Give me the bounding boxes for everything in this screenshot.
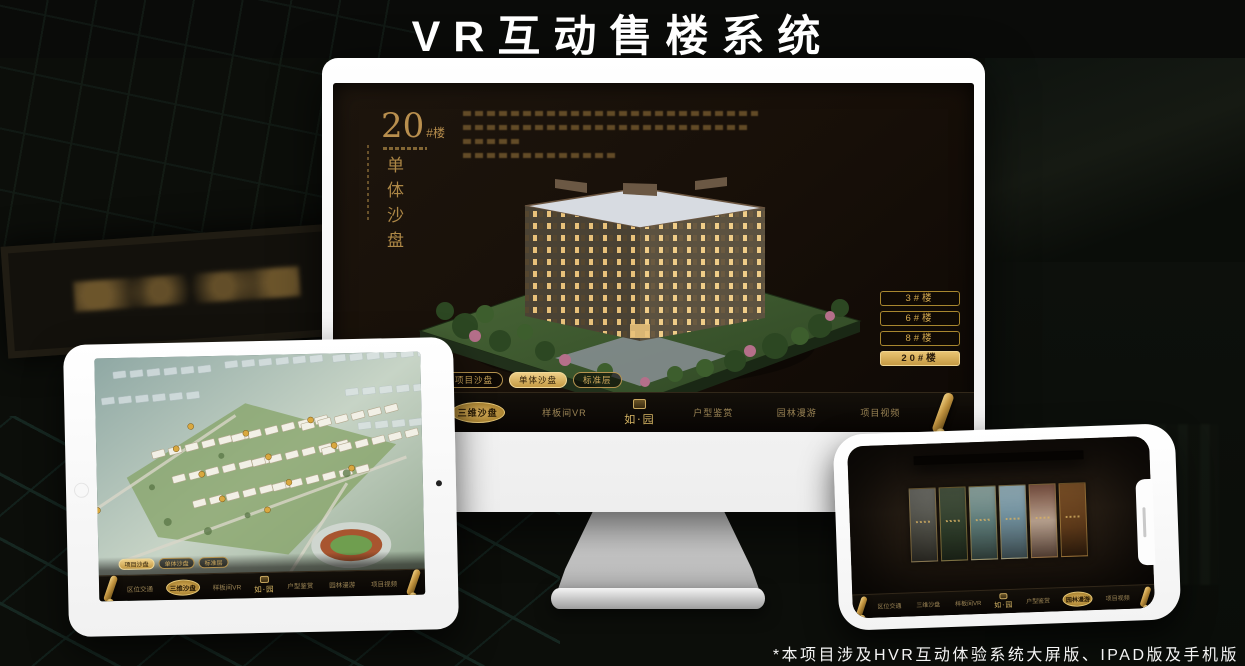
- view-tabs: 项目沙盘 单体沙盘 标准层: [445, 372, 622, 388]
- ipad-nav-project-video[interactable]: 项目视频: [368, 576, 400, 591]
- floor-button-20[interactable]: 20#楼: [880, 351, 960, 366]
- nav-item-project-video[interactable]: 项目视频: [854, 403, 906, 422]
- phone-nav-location[interactable]: 区位交通: [875, 599, 903, 613]
- phone-brand-logo: 如·园: [994, 593, 1014, 611]
- monitor-stand-neck: [557, 510, 760, 592]
- phone-frame: 区位交通 三维沙盘 样板间VR 如·园 户型鉴赏 园林漫游 项目视频: [833, 423, 1182, 631]
- ipad-nav-floorplans[interactable]: 户型鉴赏: [284, 577, 316, 592]
- gate-silhouette: [914, 450, 1083, 465]
- ipad-scroll-right-icon[interactable]: [406, 568, 421, 596]
- floor-button-group: 3#楼 6#楼 8#楼 20#楼: [880, 291, 960, 366]
- ipad-screen: 项目沙盘 单体沙盘 标准层 区位交通 三维沙盘 样板间VR 如·园 户型鉴赏 园…: [94, 352, 425, 602]
- scroll-menu-icon[interactable]: [931, 391, 955, 432]
- ipad-tab-single-sandbox[interactable]: 单体沙盘: [158, 557, 194, 569]
- nav-item-floorplans[interactable]: 户型鉴赏: [687, 403, 739, 422]
- heading-vertical-rule: [367, 145, 369, 223]
- ipad-camera-dot: [436, 480, 442, 486]
- ipad-scroll-left-icon[interactable]: [103, 575, 118, 602]
- ipad-view-tabs: 项目沙盘 单体沙盘 标准层: [118, 557, 228, 570]
- floor-button-6[interactable]: 6#楼: [880, 311, 960, 326]
- background-photo-right: [985, 58, 1245, 268]
- scene-panel-entrance[interactable]: [1029, 483, 1059, 558]
- ipad-nav-overlay: 项目沙盘 单体沙盘 标准层 区位交通 三维沙盘 样板间VR 如·园 户型鉴赏 园…: [98, 551, 425, 602]
- ipad-tab-standard-floor[interactable]: 标准层: [198, 557, 228, 569]
- ipad-bezel-mark: [74, 483, 89, 498]
- phone-nav-project-video[interactable]: 项目视频: [1103, 591, 1131, 605]
- scene-panel-interior[interactable]: [1059, 482, 1089, 557]
- background-award-plaque: [1, 221, 374, 358]
- ipad-nav-sandbox[interactable]: 三维沙盘: [166, 579, 200, 596]
- scene-panel-building[interactable]: [999, 484, 1029, 559]
- phone-scroll-right-icon[interactable]: [1139, 586, 1151, 608]
- floor-button-3[interactable]: 3#楼: [880, 291, 960, 306]
- phone-brand-seal-icon: [999, 593, 1007, 599]
- monitor-stand-base: [551, 588, 765, 609]
- tab-single-sandbox[interactable]: 单体沙盘: [509, 372, 567, 388]
- phone-nav-garden-tour[interactable]: 园林漫游: [1063, 591, 1094, 607]
- tab-standard-floor[interactable]: 标准层: [573, 372, 622, 388]
- brand-seal-icon: [633, 399, 646, 409]
- ipad-brand-seal-icon: [260, 576, 269, 583]
- ipad-nav-garden-tour[interactable]: 园林漫游: [326, 576, 358, 591]
- phone-notch: [1135, 479, 1155, 566]
- nav-item-garden-tour[interactable]: 园林漫游: [771, 403, 823, 422]
- ipad-tab-project-sandbox[interactable]: 项目沙盘: [118, 558, 154, 570]
- scene-panel-courtyard[interactable]: [909, 487, 939, 562]
- ipad-nav-location[interactable]: 区位交通: [124, 581, 156, 596]
- scene-panel-garden[interactable]: [939, 486, 969, 561]
- nav-item-sandbox[interactable]: 三维沙盘: [451, 402, 505, 423]
- building-subtitle: 单体沙盘: [381, 156, 406, 256]
- ipad-frame: 项目沙盘 单体沙盘 标准层 区位交通 三维沙盘 样板间VR 如·园 户型鉴赏 园…: [63, 337, 459, 637]
- ipad-nav-showroom-vr[interactable]: 样板间VR: [210, 579, 245, 594]
- phone-nav-floorplans[interactable]: 户型鉴赏: [1024, 593, 1052, 607]
- brand-logo: 如·园: [624, 399, 656, 427]
- phone-brand-logo-text: 如·园: [994, 601, 1014, 610]
- brand-logo-text: 如·园: [624, 413, 656, 426]
- footnote: *本项目涉及HVR互动体验系统大屏版、IPAD版及手机版: [773, 641, 1239, 665]
- floor-button-8[interactable]: 8#楼: [880, 331, 960, 346]
- nav-item-showroom-vr[interactable]: 样板间VR: [536, 403, 593, 422]
- phone-nav-sandbox[interactable]: 三维沙盘: [914, 597, 942, 611]
- phone-nav-showroom-vr[interactable]: 样板间VR: [953, 596, 984, 610]
- phone-bottom-nav: 区位交通 三维沙盘 样板间VR 如·园 户型鉴赏 园林漫游 项目视频: [852, 584, 1155, 619]
- phone-speaker-icon: [1142, 507, 1146, 537]
- ipad-brand-logo: 如·园: [254, 576, 275, 595]
- ipad-bottom-nav: 区位交通 三维沙盘 样板间VR 如·园 户型鉴赏 园林漫游 项目视频: [99, 569, 425, 602]
- scene-panel-landscape[interactable]: [969, 485, 999, 560]
- ipad-brand-logo-text: 如·园: [254, 585, 275, 594]
- phone-scroll-left-icon[interactable]: [856, 596, 868, 618]
- page-title: VR互动售楼系统: [0, 2, 1245, 64]
- phone-screen: 区位交通 三维沙盘 样板间VR 如·园 户型鉴赏 园林漫游 项目视频: [847, 436, 1155, 618]
- scene-panel-gallery: [909, 482, 1088, 562]
